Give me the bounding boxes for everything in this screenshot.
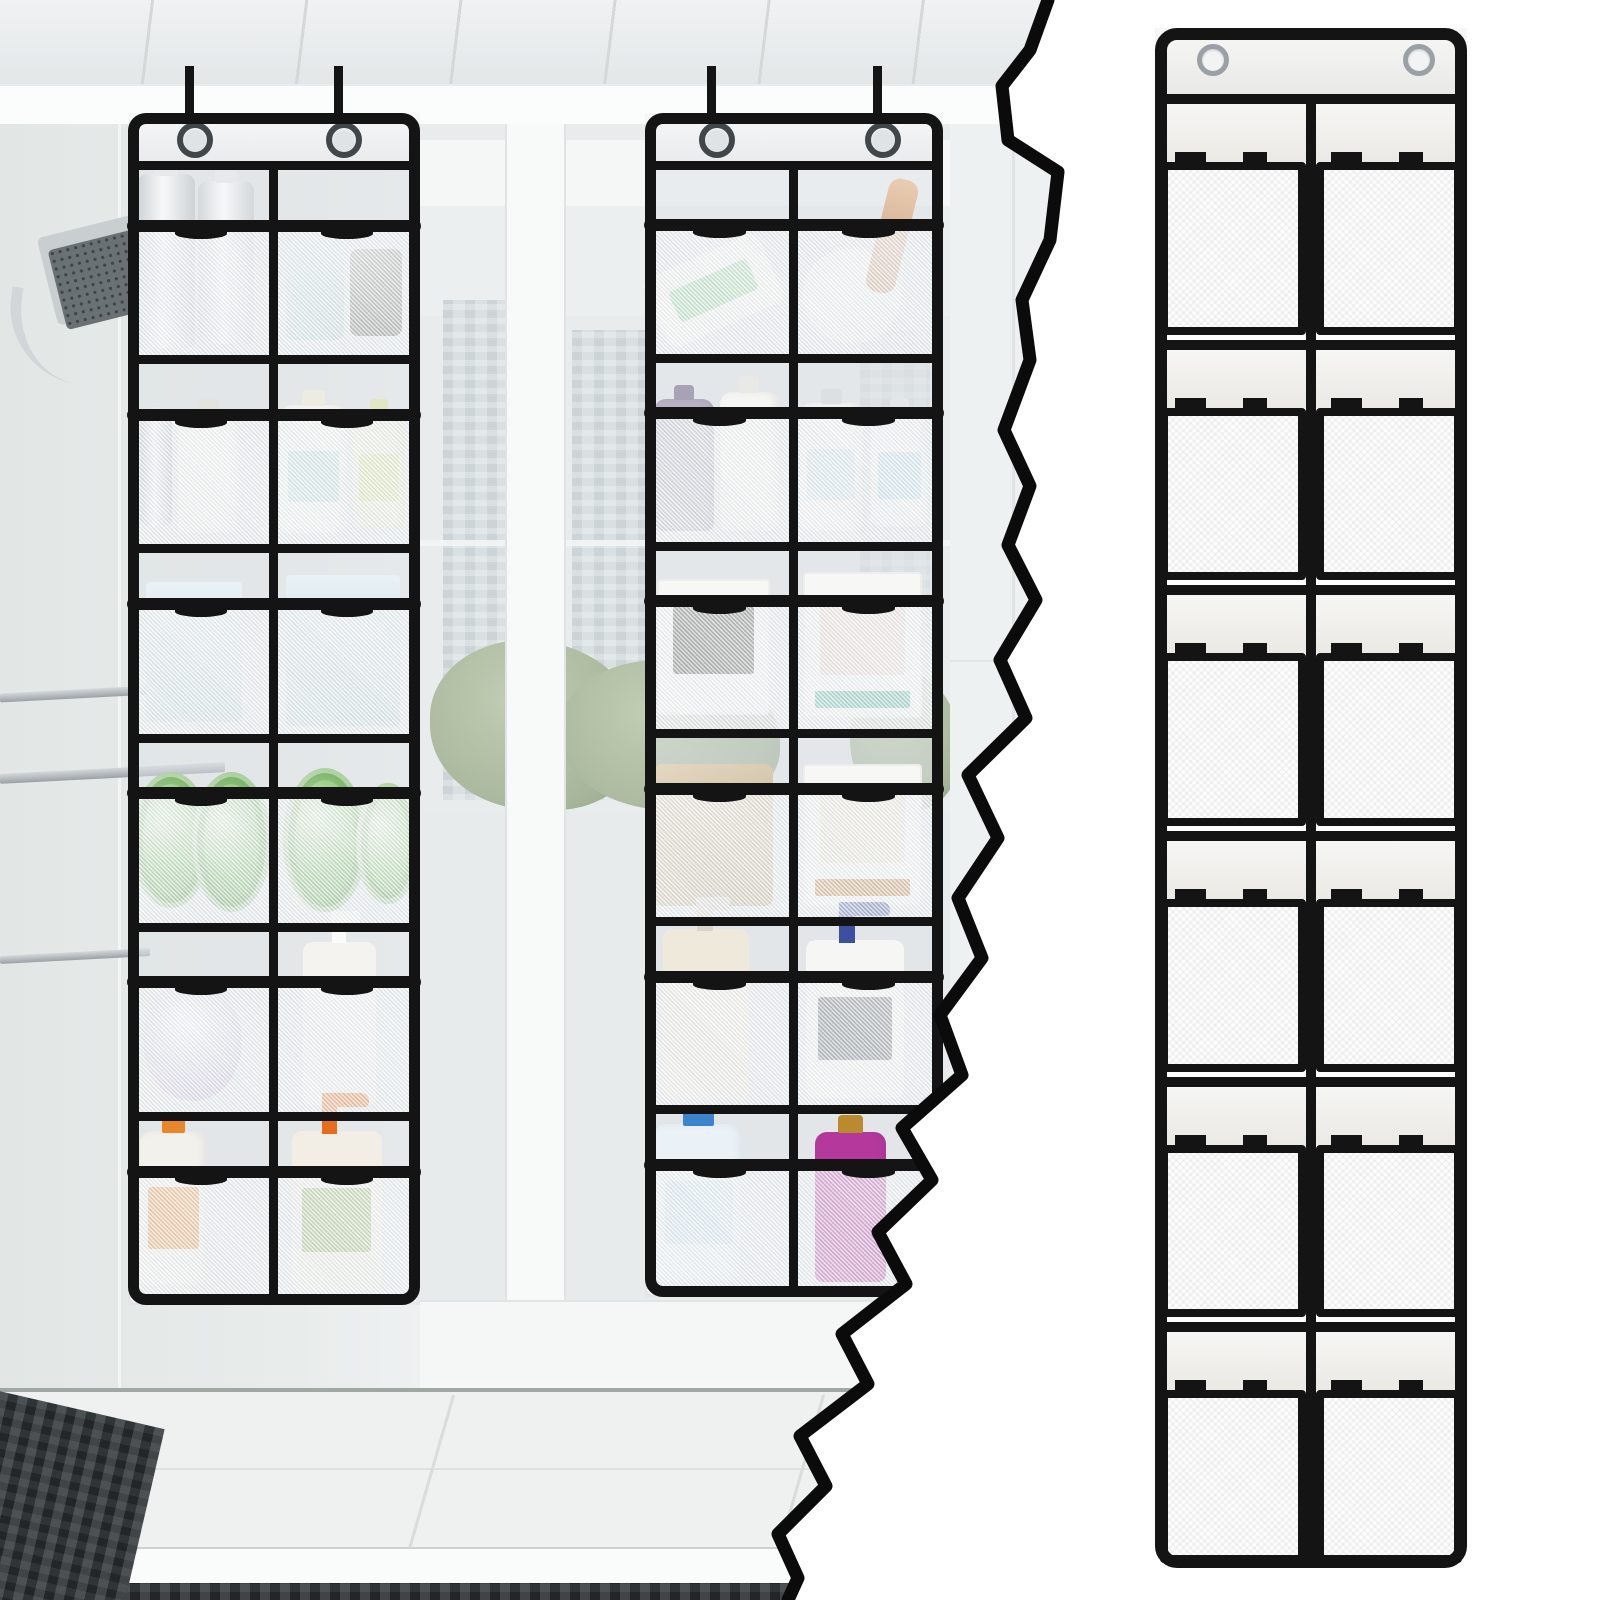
mesh-pocket	[276, 414, 418, 546]
pocket-cell	[274, 927, 420, 1116]
mesh-pocket	[796, 600, 941, 731]
pocket-cell	[645, 921, 794, 1109]
tile-grout-line	[1012, 124, 1015, 1388]
mesh-pocket	[796, 224, 941, 355]
pocket-cell	[794, 546, 943, 734]
mesh-pocket	[1160, 1145, 1306, 1318]
hanging-organizer-middle	[645, 113, 943, 1297]
pocket-cell	[794, 358, 943, 546]
mesh-pocket	[1316, 162, 1462, 335]
mesh-pocket	[1160, 653, 1306, 826]
pocket-cell	[274, 1116, 420, 1305]
mesh-pocket	[647, 412, 792, 543]
grommet-icon	[177, 122, 213, 158]
mesh-pocket	[130, 981, 272, 1113]
mesh-pocket	[647, 600, 792, 731]
mesh-pocket	[647, 976, 792, 1107]
center-divider	[269, 161, 278, 1305]
pocket-cell	[128, 170, 274, 359]
mesh-pocket	[1160, 408, 1306, 581]
mesh-pocket	[1160, 162, 1306, 335]
product-pocket-cell	[1311, 350, 1467, 586]
product-pocket-cell	[1155, 350, 1311, 586]
mesh-pocket	[130, 603, 272, 735]
door-hook	[334, 66, 343, 118]
pocket-cell	[128, 738, 274, 927]
pocket-cell	[794, 170, 943, 358]
pocket-cell	[645, 546, 794, 734]
ceiling	[0, 0, 1100, 84]
grommet-icon	[1403, 44, 1435, 76]
pocket-cell	[274, 548, 420, 737]
floor-joint	[1018, 1395, 1065, 1550]
grommet-icon	[865, 122, 901, 158]
door-hook	[873, 66, 882, 118]
mesh-pocket	[647, 224, 792, 355]
mesh-pocket	[130, 225, 272, 357]
pocket-cell	[645, 358, 794, 546]
product-pocket-cell	[1155, 104, 1311, 340]
product-pocket-cell	[1155, 1332, 1311, 1568]
mesh-pocket	[1160, 899, 1306, 1072]
pocket-cell	[274, 359, 420, 548]
mesh-pocket	[276, 1171, 418, 1303]
product-pocket-cell	[1311, 1087, 1467, 1323]
mesh-pocket	[1160, 1390, 1306, 1563]
mesh-pocket	[276, 225, 418, 357]
product-pocket-cell	[1311, 841, 1467, 1077]
pocket-cell	[645, 733, 794, 921]
tile-grout-line	[950, 1025, 1100, 1027]
hanging-organizer-left	[128, 113, 420, 1305]
tiled-wall	[950, 124, 1100, 1388]
shower-threshold	[0, 1547, 1100, 1585]
mosaic-tile-strip	[0, 1583, 1100, 1600]
product-header	[1155, 28, 1467, 104]
door-hook	[707, 66, 716, 118]
mesh-pocket	[130, 414, 272, 546]
window-sill	[420, 1300, 950, 1392]
mesh-pocket	[796, 1164, 941, 1295]
mesh-pocket	[796, 788, 941, 919]
pocket-cell	[794, 1109, 943, 1297]
pocket-cell	[645, 170, 794, 358]
pocket-cell	[794, 733, 943, 921]
product-pocket-cell	[1311, 1332, 1467, 1568]
product-organizer-shot	[1155, 28, 1467, 1568]
mesh-pocket	[1316, 899, 1462, 1072]
pocket-cell	[794, 921, 943, 1109]
product-pocket-cell	[1155, 595, 1311, 831]
pocket-cell	[128, 548, 274, 737]
mesh-pocket	[647, 1164, 792, 1295]
mesh-pocket	[130, 792, 272, 924]
pocket-cell	[128, 359, 274, 548]
mesh-pocket	[130, 1171, 272, 1303]
product-pocket-cell	[1311, 104, 1467, 340]
tile-grout-line	[950, 660, 1100, 662]
grommet-icon	[1197, 44, 1229, 76]
mesh-pocket	[276, 603, 418, 735]
product-pocket-cell	[1155, 1087, 1311, 1323]
pocket-cell	[128, 927, 274, 1116]
mesh-pocket	[1316, 1145, 1462, 1318]
mesh-pocket	[1316, 653, 1462, 826]
center-divider	[789, 161, 798, 1297]
mesh-pocket	[276, 792, 418, 924]
center-divider	[1306, 94, 1316, 1568]
mesh-pocket	[1316, 408, 1462, 581]
pocket-cell	[274, 170, 420, 359]
mesh-pocket	[1316, 1390, 1462, 1563]
pocket-cell	[645, 1109, 794, 1297]
product-collage-image	[0, 0, 1600, 1600]
grommet-icon	[699, 122, 735, 158]
mesh-pocket	[647, 788, 792, 919]
floor-grout-line	[0, 1468, 1100, 1470]
product-pocket-cell	[1155, 841, 1311, 1077]
pocket-cell	[128, 1116, 274, 1305]
window-center-frame	[505, 124, 566, 1390]
grommet-icon	[326, 122, 362, 158]
door-hook	[185, 66, 194, 118]
mesh-pocket	[276, 981, 418, 1113]
pocket-cell	[274, 738, 420, 927]
product-pocket-cell	[1311, 595, 1467, 831]
mesh-pocket	[796, 976, 941, 1107]
mesh-pocket	[796, 412, 941, 543]
